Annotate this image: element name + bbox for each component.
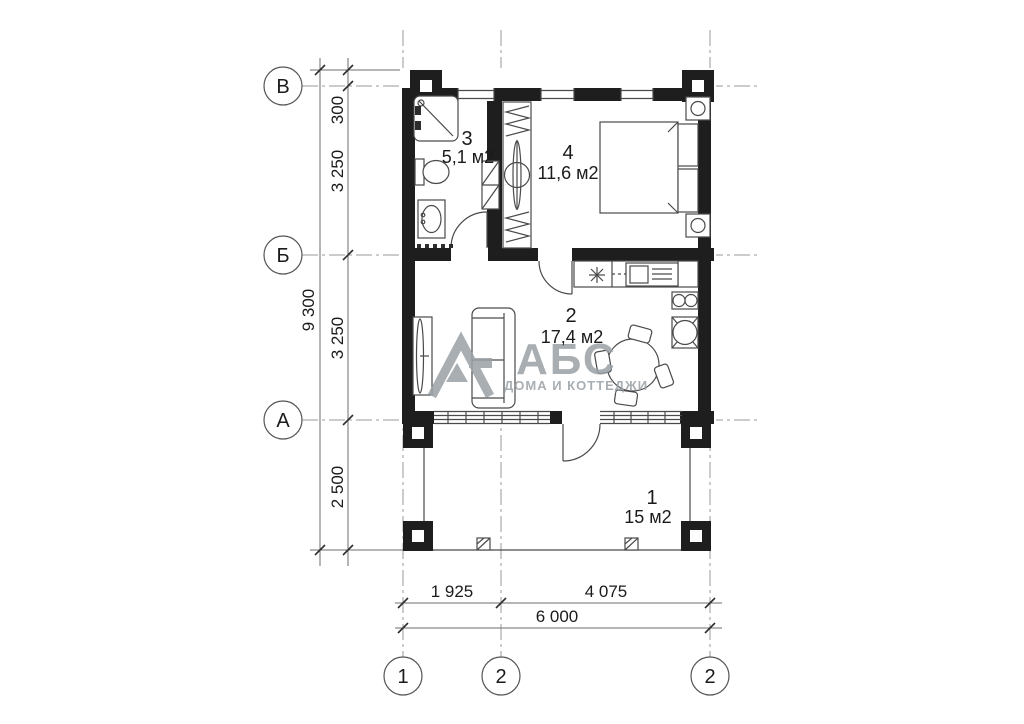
bottom-dimensions: 1 925 4 075 6 000 xyxy=(395,582,722,633)
left-dimensions: 9 300 300 3 250 3 250 2 500 xyxy=(299,58,412,566)
dim-total-height: 9 300 xyxy=(299,289,318,332)
axis-label-b: Б xyxy=(276,245,289,267)
logo-subtitle: ДОМА И КОТТЕДЖИ xyxy=(504,378,648,393)
dim-1925: 1 925 xyxy=(431,582,474,601)
wardrobe xyxy=(503,102,531,248)
room-4-number: 4 xyxy=(562,142,573,164)
nightstand-top xyxy=(686,97,710,120)
stove-symbol xyxy=(589,267,605,283)
bathroom-sink xyxy=(418,200,445,238)
post-terrace-top-left xyxy=(403,418,433,448)
axis-label-1: 1 xyxy=(397,666,408,688)
bedroom-door-opening xyxy=(538,247,572,262)
terrace-mini-post-2 xyxy=(625,538,638,550)
terrace-door xyxy=(562,411,600,461)
bathroom-door-opening xyxy=(451,247,488,262)
washing-machine xyxy=(672,317,698,348)
windows-top xyxy=(458,88,653,101)
window-bathroom xyxy=(458,88,494,101)
nightstand-bottom xyxy=(686,214,710,237)
room-1-area: 15 м2 xyxy=(624,507,671,527)
floor-plan-drawing: 9 300 300 3 250 3 250 2 500 1 925 4 075 … xyxy=(0,0,1024,724)
post-terrace-bottom-left xyxy=(403,521,433,551)
tv-unit xyxy=(413,317,432,395)
dim-seg-2500: 2 500 xyxy=(328,466,347,509)
axis-marker-2b: 2 xyxy=(691,657,729,695)
dim-4075: 4 075 xyxy=(585,582,628,601)
dim-seg-3250-bottom: 3 250 xyxy=(328,317,347,360)
room-4-area: 11,6 м2 xyxy=(537,163,598,183)
axis-label-v: В xyxy=(276,76,289,98)
bathroom-cabinet xyxy=(482,161,499,209)
shower-cabin xyxy=(414,96,458,141)
room-3-area: 5,1 м2 xyxy=(442,147,494,167)
kitchen-sink xyxy=(626,263,678,286)
axis-marker-v: В xyxy=(264,67,302,105)
dim-seg-3250-top: 3 250 xyxy=(328,150,347,193)
window-bedroom-1 xyxy=(541,88,574,101)
axis-label-a: А xyxy=(276,410,290,432)
floor-plan-canvas: 9 300 300 3 250 3 250 2 500 1 925 4 075 … xyxy=(0,0,1024,724)
axis-marker-a: А xyxy=(264,401,302,439)
room-2-area: 17,4 м2 xyxy=(541,327,603,347)
dim-total-width: 6 000 xyxy=(536,607,579,626)
post-terrace-bottom-right xyxy=(681,521,711,551)
axis-label-2b: 2 xyxy=(704,666,715,688)
post-terrace-top-right xyxy=(681,418,711,448)
axis-marker-b: Б xyxy=(264,236,302,274)
window-bedroom-2 xyxy=(621,88,653,101)
dim-offset-300: 300 xyxy=(328,96,347,124)
axis-marker-2: 2 xyxy=(482,657,520,695)
axis-marker-1: 1 xyxy=(384,657,422,695)
room-1-number: 1 xyxy=(646,487,657,509)
axis-label-2: 2 xyxy=(495,666,506,688)
wall-south-mullion xyxy=(550,411,563,424)
hob-two-burner xyxy=(672,292,698,309)
terrace-mini-post-1 xyxy=(477,538,490,550)
room-2-number: 2 xyxy=(565,305,576,327)
